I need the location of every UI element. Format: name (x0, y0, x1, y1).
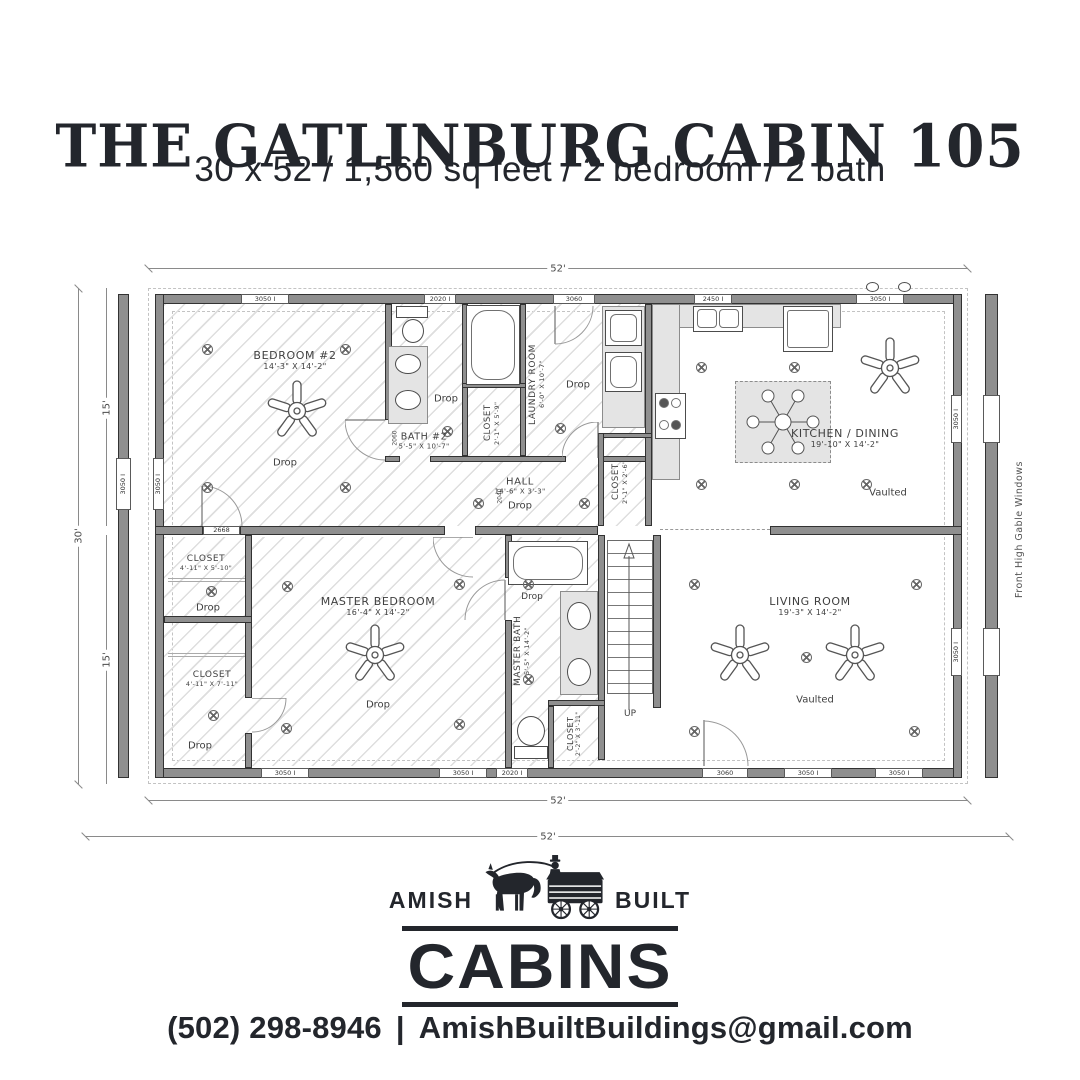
ceiling-symbol (282, 581, 293, 592)
room-size: 14'-3" X 14'-2" (253, 362, 336, 371)
ceiling-note: Drop (434, 394, 458, 405)
wall-segment (240, 526, 445, 535)
wall-segment (770, 526, 962, 535)
wall-segment (164, 616, 252, 623)
window-size-label: 2020 I (502, 770, 523, 777)
room-size: 19'-3" X 14'-2" (769, 608, 850, 617)
open-ceiling-break (660, 529, 770, 530)
ceiling-symbol (789, 479, 800, 490)
wall-segment (598, 433, 652, 438)
dimension-label: 30' (74, 525, 85, 546)
dimension-label: 52' (547, 796, 568, 807)
stairs-label: UP (624, 709, 636, 719)
door-opening: 3060 (702, 768, 748, 778)
window-size-label: 3050 I (275, 770, 296, 777)
door-swing (433, 537, 477, 581)
room-size: 19'-10" X 14'-2" (791, 440, 899, 449)
gable-wall-strip (985, 294, 998, 778)
ceiling-note: Drop (521, 592, 543, 602)
room-label-hall: HALL 14'-6" X 3'-3" (494, 477, 545, 496)
window-size-label: 3050 I (889, 770, 910, 777)
door-swing (702, 720, 750, 768)
ceiling-symbol (801, 652, 812, 663)
door-size-label: 3060 (566, 296, 583, 303)
ceiling-symbol (696, 362, 707, 373)
dining-table (735, 381, 831, 463)
ceiling-symbol (202, 344, 213, 355)
sink-basin (567, 658, 591, 686)
room-label-master-bath: MASTER BATH 5'-5" X 14'-2" (513, 603, 531, 699)
wall-segment (953, 294, 962, 778)
wall-segment (548, 706, 554, 768)
room-size: 2'-1" X 2'-6" (621, 446, 629, 518)
floor-plan: 2668 3050 I 2020 I 3060 2450 I 3050 I 30… (0, 248, 1080, 860)
window-size-label: 3050 I (155, 474, 162, 495)
logo-word-built: BUILT (615, 887, 691, 914)
window: 3050 I (116, 458, 131, 510)
ceiling-symbol (340, 482, 351, 493)
stairs-direction-arrow (620, 542, 638, 714)
ceiling-symbol (208, 710, 219, 721)
room-label-bath2: BATH #2 5'-5" X 10'-7" (398, 432, 449, 451)
ceiling-fan-icon (708, 623, 772, 687)
ceiling-note: Drop (508, 501, 532, 512)
logo-top-row: AMISH (389, 852, 691, 924)
door-swing (463, 578, 507, 622)
ceiling-symbol (689, 726, 700, 737)
sink-basin (697, 309, 717, 328)
gable-windows-note: Front High Gable Windows (1014, 461, 1025, 598)
toilet-bowl (517, 716, 545, 746)
room-label-master-bedroom: MASTER BEDROOM 16'-4" X 14'-2" (321, 595, 436, 617)
sink-basin (719, 309, 739, 328)
window: 3050 I (241, 294, 289, 304)
room-size: 2'-1" X 5'-9" (493, 390, 501, 456)
burner (659, 420, 669, 430)
ceiling-fan-icon (343, 623, 407, 687)
contact-separator: | (396, 1010, 405, 1046)
burner (671, 420, 681, 430)
ceiling-note: Drop (196, 603, 220, 614)
window-size-label: 3050 I (120, 474, 127, 495)
window: 2020 I (424, 294, 456, 304)
wall-segment (645, 304, 652, 526)
room-name: HALL (494, 477, 545, 488)
room-label-closet-bath2: CLOSET 2'-1" X 5'-9" (483, 390, 501, 456)
room-name: LIVING ROOM (769, 595, 850, 608)
room-name: CLOSET (611, 446, 621, 518)
window: 3050 I (875, 768, 923, 778)
window: 3050 I (951, 628, 962, 676)
room-name: CLOSET (186, 670, 238, 680)
room-label-closet2: CLOSET 4'-11" X 7'-11" (186, 670, 238, 688)
ceiling-symbol (789, 362, 800, 373)
sink-basin (395, 354, 421, 374)
window-size-label: 3050 I (953, 409, 960, 430)
room-size: 2'-2" X 3'-11" (575, 704, 582, 764)
ceiling-symbol (911, 579, 922, 590)
ceiling-note: Drop (188, 741, 212, 752)
gable-wall-strip (118, 294, 129, 778)
ceiling-note: Vaulted (869, 488, 907, 499)
window: 2450 I (694, 294, 732, 304)
logo-word-amish: AMISH (389, 887, 473, 914)
door-swing (345, 418, 389, 462)
vent-symbol (898, 282, 911, 292)
room-label-kitchen: KITCHEN / DINING 19'-10" X 14'-2" (791, 427, 899, 449)
window-size-label: 3050 I (798, 770, 819, 777)
dimension-label: 52' (537, 832, 558, 843)
sink-basin (610, 314, 637, 342)
window: 3050 I (439, 768, 487, 778)
room-label-living: LIVING ROOM 19'-3" X 14'-2" (769, 595, 850, 617)
door-size-label: 2668 (213, 527, 230, 534)
door-opening: 3060 (553, 294, 595, 304)
wall-segment (155, 294, 164, 778)
ceiling-symbol (555, 423, 566, 434)
ceiling-note: Drop (366, 700, 390, 711)
ceiling-fan-icon (858, 336, 922, 400)
horse-and-wagon-icon (481, 852, 607, 924)
ceiling-note: Drop (566, 380, 590, 391)
room-size: 16'-4" X 14'-2" (321, 608, 436, 617)
window (983, 628, 1000, 676)
sink-basin (395, 390, 421, 410)
contact-bar: (502) 298-8946 | AmishBuiltBuildings@gma… (0, 1010, 1080, 1046)
window: 3050 I (951, 395, 962, 443)
wall-segment (430, 456, 566, 462)
burner (671, 398, 681, 408)
bathtub-inner (513, 546, 583, 580)
ceiling-symbol (281, 723, 292, 734)
wall-segment (520, 304, 526, 456)
ceiling-symbol (696, 479, 707, 490)
kitchen-counter (652, 304, 680, 480)
page-subtitle: 30 x 52 / 1,560 sq feet / 2 bedroom / 2 … (0, 150, 1080, 190)
dimension-label: 15' (102, 397, 113, 418)
window (983, 395, 1000, 443)
room-name: BATH #2 (398, 432, 449, 443)
room-name: CLOSET (566, 704, 575, 764)
wall-segment (475, 526, 598, 535)
ceiling-symbol (454, 719, 465, 730)
room-size: 4'-11" X 7'-11" (186, 680, 238, 688)
room-label-closet1: CLOSET 4'-11" X 5'-10" (180, 554, 232, 572)
amish-built-cabins-logo: AMISH (0, 852, 1080, 1009)
room-name: KITCHEN / DINING (791, 427, 899, 440)
room-name: MASTER BEDROOM (321, 595, 436, 608)
room-name: CLOSET (180, 554, 232, 564)
ceiling-symbol (473, 498, 484, 509)
wall-segment (505, 620, 512, 768)
vent-symbol (866, 282, 879, 292)
logo-word-cabins: CABINS (407, 935, 672, 999)
room-name: MASTER BATH (513, 603, 523, 699)
window-size-label: 3050 I (453, 770, 474, 777)
closet-shelf (168, 578, 245, 582)
window: 3050 I (784, 768, 832, 778)
burner (659, 398, 669, 408)
washer-inner (610, 356, 637, 388)
room-size: 6'-0" X 10'-7" (538, 336, 546, 432)
ceiling-symbol (454, 579, 465, 590)
toilet-bowl (402, 319, 424, 343)
window-size-label: 3050 I (255, 296, 276, 303)
window-size-label: 3050 I (870, 296, 891, 303)
ceiling-symbol (689, 579, 700, 590)
toilet-tank (396, 306, 428, 318)
window-size-label: 2020 I (430, 296, 451, 303)
window: 2020 I (496, 768, 528, 778)
wall-segment (155, 526, 203, 535)
ceiling-symbol (340, 344, 351, 355)
closet-shelf (168, 653, 245, 657)
window: 3050 I (261, 768, 309, 778)
room-size: 4'-11" X 5'-10" (180, 564, 232, 572)
window-size-label: 2450 I (703, 296, 724, 303)
ceiling-symbol (579, 498, 590, 509)
room-name: CLOSET (483, 390, 493, 456)
bathtub-inner (471, 310, 515, 380)
room-label-closet-mbath: CLOSET 2'-2" X 3'-11" (566, 704, 582, 764)
room-size: 5'-5" X 14'-2" (523, 603, 531, 699)
door-size-label: 2060 (392, 430, 399, 445)
ceiling-symbol (206, 586, 217, 597)
wall-segment (653, 535, 661, 708)
room-name: BEDROOM #2 (253, 349, 336, 362)
door-swing (562, 422, 602, 462)
room-name: LAUNDRY ROOM (528, 336, 538, 432)
wall-segment (245, 733, 252, 768)
door-size-label: 3060 (717, 770, 734, 777)
door-opening: 2668 (203, 526, 240, 535)
room-size: 5'-5" X 10'-7" (398, 443, 449, 451)
door-swing (553, 306, 597, 348)
ceiling-symbol (523, 579, 534, 590)
sink-basin (567, 602, 591, 630)
room-label-laundry: LAUNDRY ROOM 6'-0" X 10'-7" (528, 336, 546, 432)
window: 3050 I (856, 294, 904, 304)
ceiling-note: Drop (273, 458, 297, 469)
phone-number: (502) 298-8946 (167, 1010, 382, 1046)
refrigerator-inner (787, 310, 829, 348)
room-label-bedroom2: BEDROOM #2 14'-3" X 14'-2" (253, 349, 336, 371)
wall-segment (598, 535, 605, 760)
room-size: 14'-6" X 3'-3" (494, 488, 545, 496)
ceiling-symbol (909, 726, 920, 737)
window-size-label: 3050 I (953, 642, 960, 663)
ceiling-fan-icon (265, 379, 329, 443)
window: 3050 I (153, 458, 164, 510)
toilet-tank (514, 746, 548, 759)
dimension-label: 52' (547, 264, 568, 275)
dimension-label: 15' (102, 649, 113, 670)
email-address: AmishBuiltBuildings@gmail.com (419, 1010, 913, 1046)
logo-divider (402, 1002, 678, 1007)
ceiling-note: Vaulted (796, 695, 834, 706)
ceiling-symbol (202, 482, 213, 493)
room-label-closet-laundry: CLOSET 2'-1" X 2'-6" (611, 446, 629, 518)
ceiling-fan-icon (823, 623, 887, 687)
